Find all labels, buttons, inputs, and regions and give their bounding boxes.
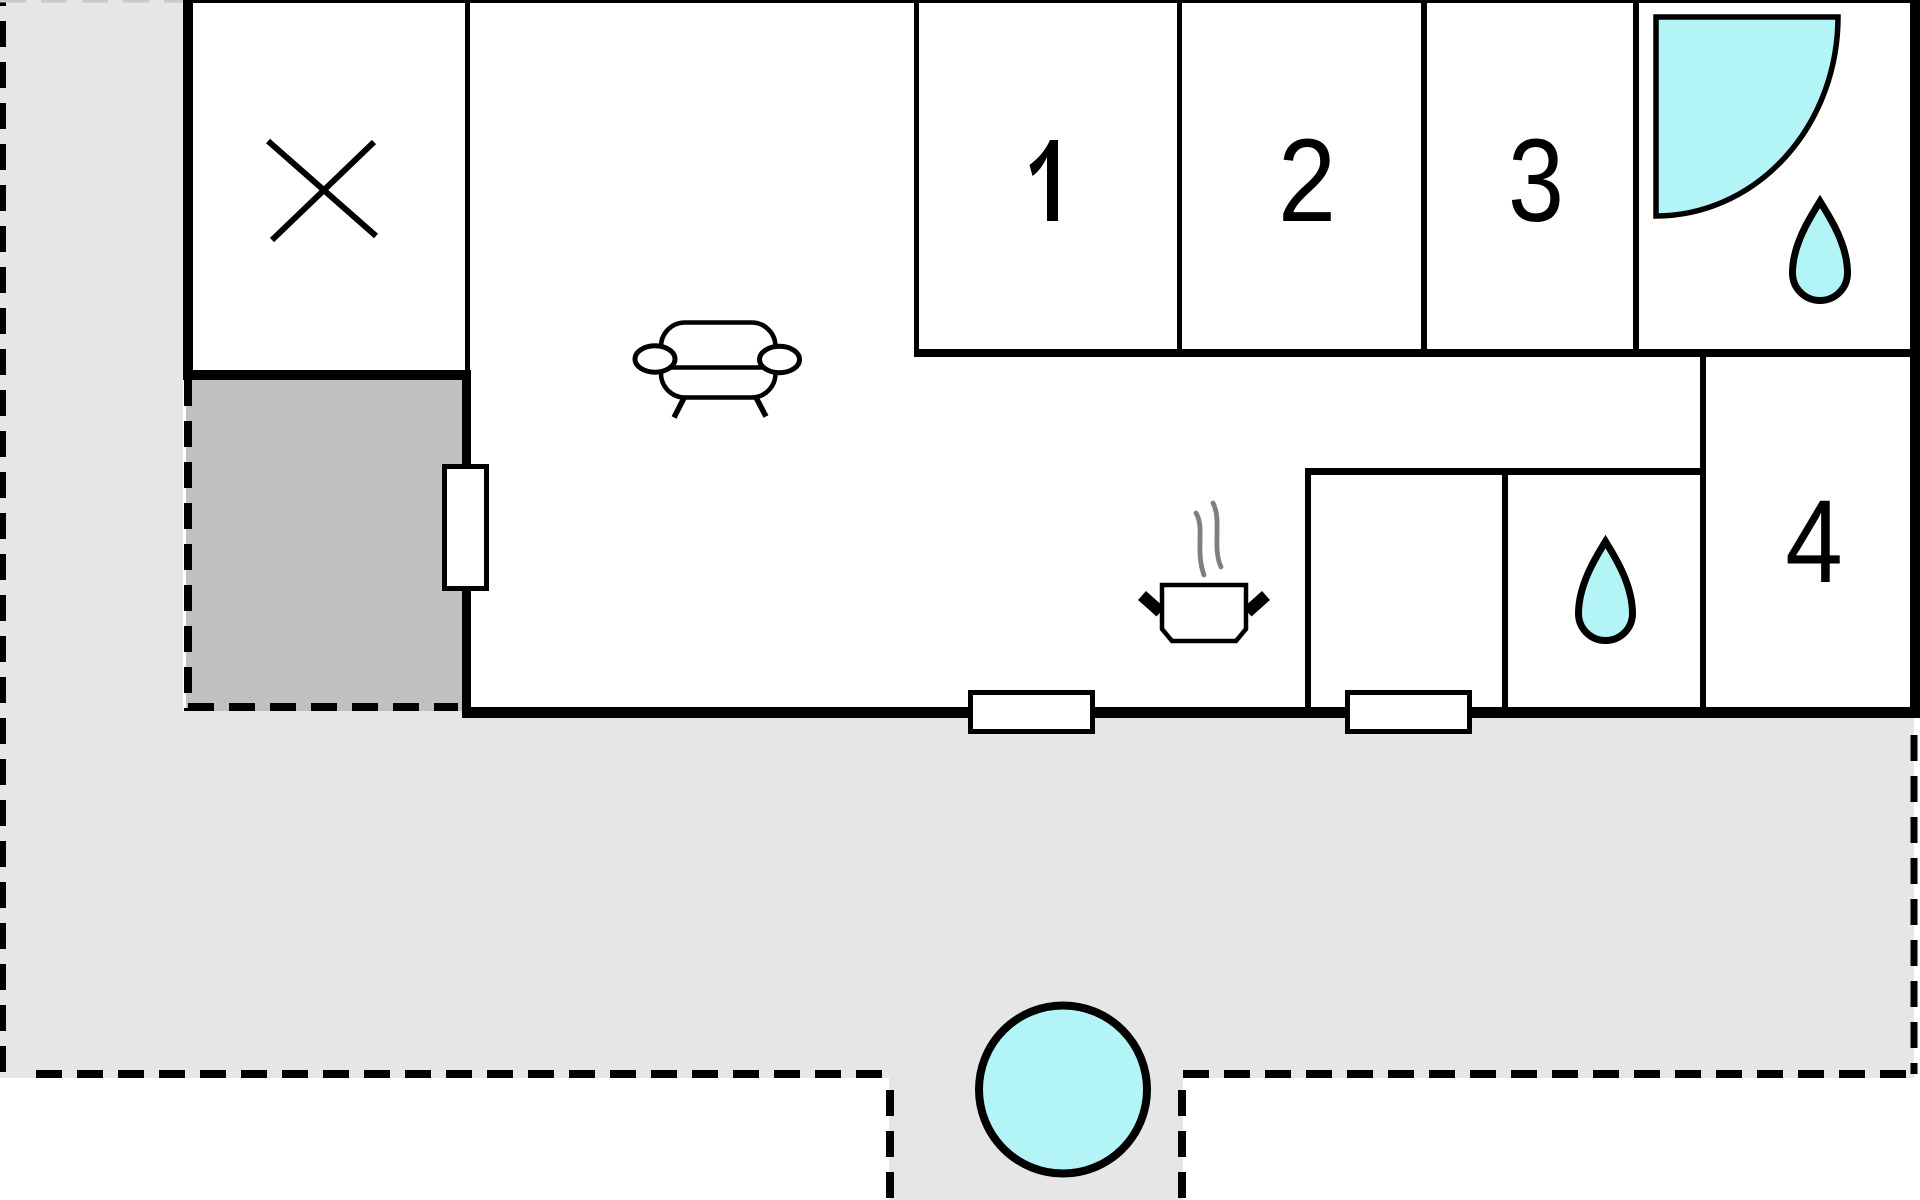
svg-text:2: 2	[1278, 115, 1336, 247]
svg-text:3: 3	[1508, 115, 1564, 247]
svg-text:4: 4	[1785, 476, 1843, 608]
